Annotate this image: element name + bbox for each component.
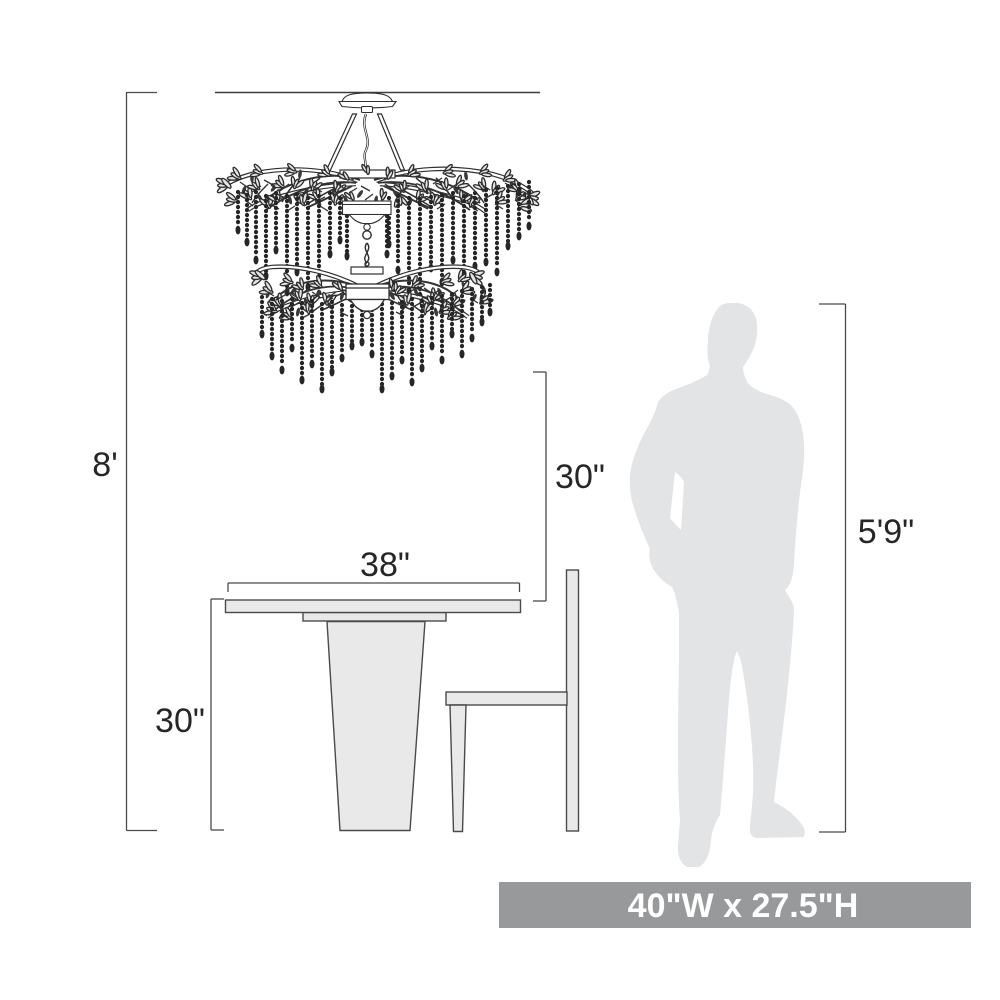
svg-text:40"W x 27.5"H: 40"W x 27.5"H [628, 887, 859, 925]
svg-text:30": 30" [155, 702, 205, 740]
svg-text:5'9": 5'9" [858, 513, 914, 551]
svg-text:38": 38" [360, 546, 410, 584]
svg-text:8': 8' [92, 446, 117, 484]
svg-text:30": 30" [555, 458, 605, 496]
